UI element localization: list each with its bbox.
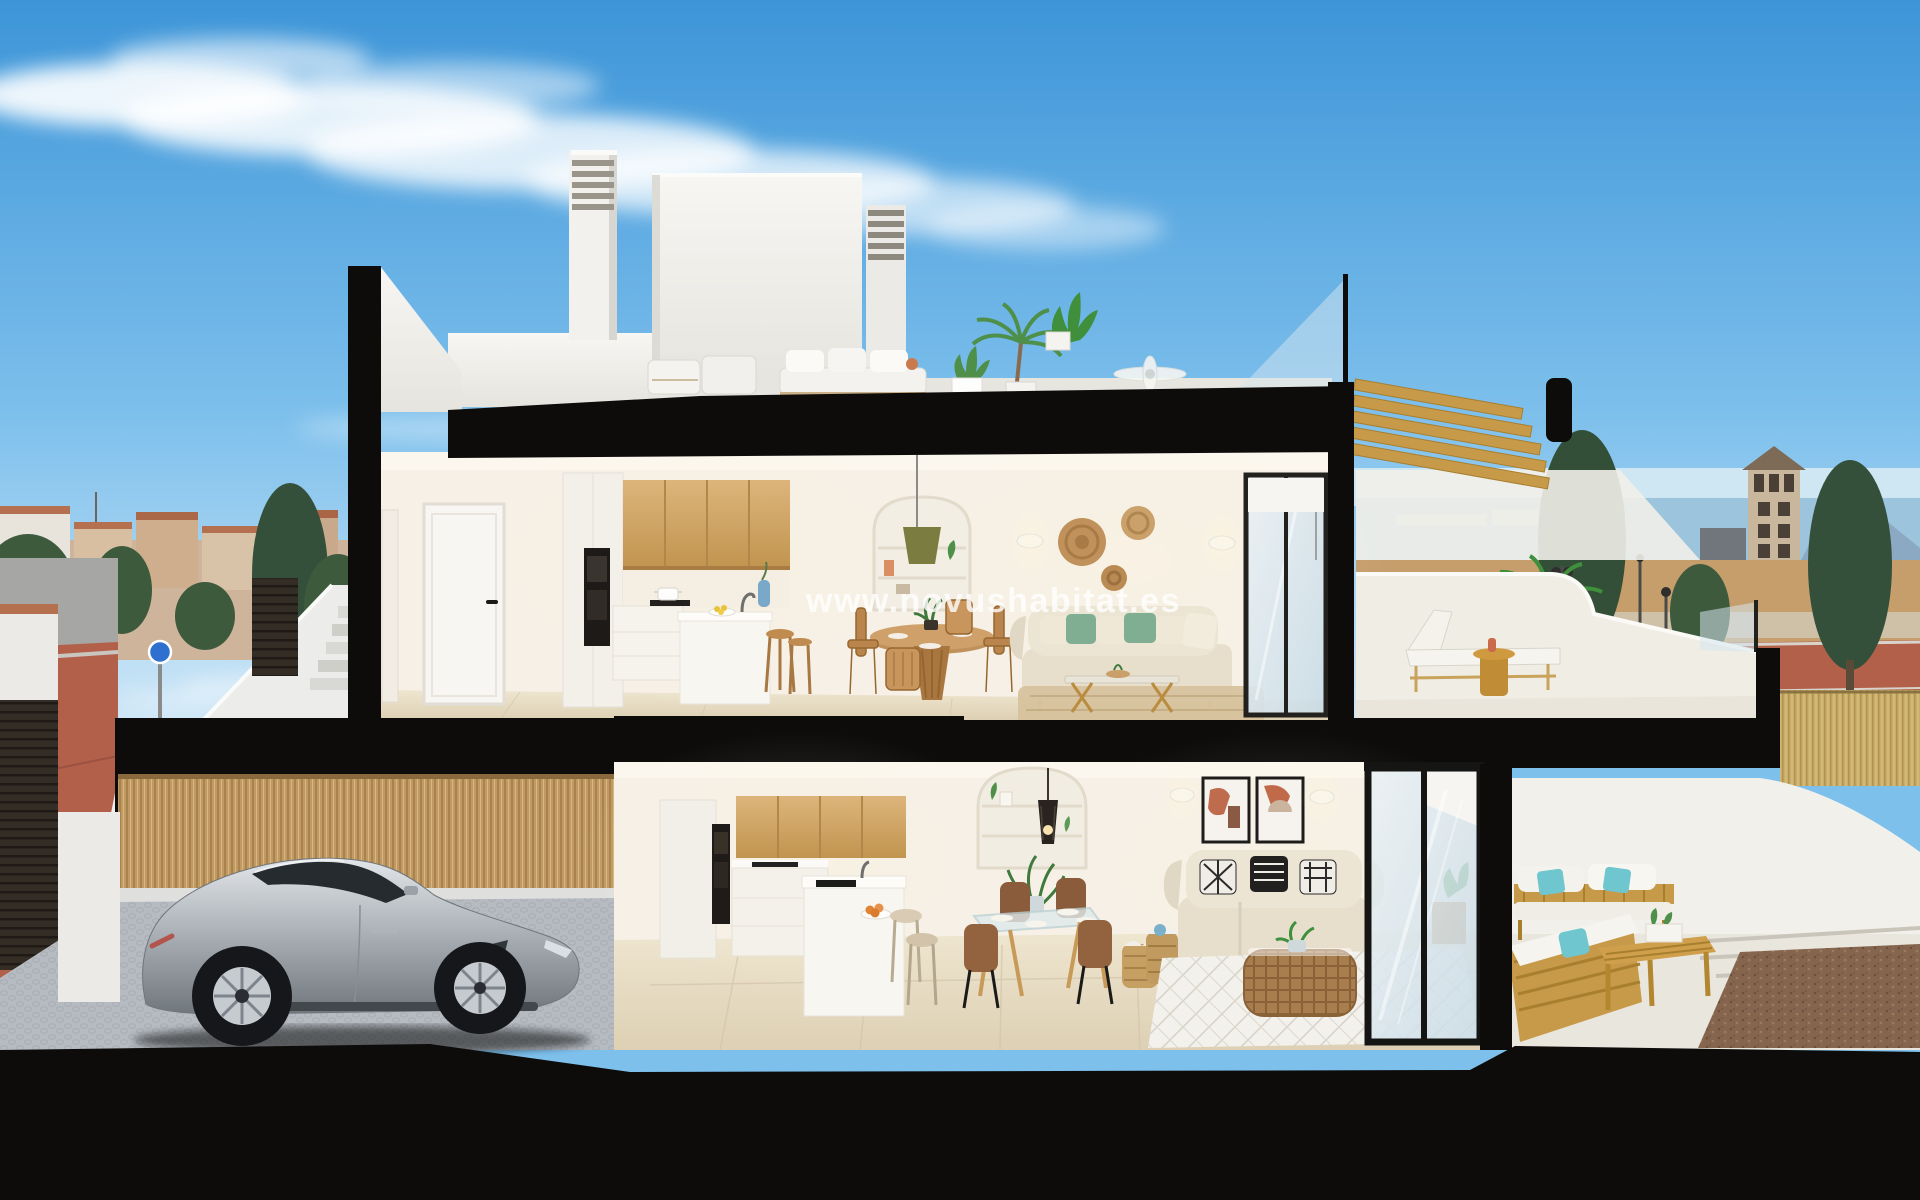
left-wall-cut bbox=[348, 266, 381, 760]
louvered-chimney-left bbox=[569, 150, 617, 340]
render-image: www.novushabitat.es bbox=[0, 0, 1920, 1200]
hall-door bbox=[424, 504, 504, 704]
car-door-handle bbox=[372, 928, 398, 933]
balustrade-post bbox=[1343, 274, 1348, 386]
hob bbox=[650, 600, 690, 606]
roof-lounge-chairs bbox=[648, 356, 756, 394]
roller-blind bbox=[1248, 478, 1324, 512]
kitchen-island-2 bbox=[802, 862, 906, 1016]
watchtower bbox=[1742, 446, 1806, 562]
bw-pillows bbox=[1200, 856, 1336, 894]
mid-slab-left bbox=[115, 718, 660, 776]
island-sink bbox=[816, 880, 856, 887]
cooking-pot bbox=[654, 588, 682, 600]
white-pillar bbox=[58, 812, 120, 1002]
car-mirror bbox=[404, 886, 418, 895]
rear-wheel bbox=[192, 946, 292, 1046]
front-wheel bbox=[434, 942, 526, 1034]
base-cabinets bbox=[613, 606, 683, 680]
carport bbox=[0, 774, 616, 1054]
terracotta-pot bbox=[906, 358, 918, 370]
door-handle bbox=[486, 600, 498, 604]
street-wall bbox=[0, 612, 58, 704]
understair-slat-door bbox=[252, 578, 298, 676]
watermark-text: www.novushabitat.es bbox=[805, 582, 1181, 620]
reed-fence bbox=[1780, 690, 1920, 786]
right-upper-wall-cut bbox=[1328, 382, 1354, 770]
tall-cabinets-2 bbox=[660, 800, 716, 958]
lower-terrace bbox=[1508, 778, 1920, 1050]
roof-parapet-left bbox=[448, 333, 658, 407]
pergola-end-beam bbox=[1546, 378, 1572, 442]
upper-floor-interior bbox=[380, 410, 1390, 728]
lower-right-wall-cut bbox=[1480, 764, 1512, 1050]
scene-canvas: www.novushabitat.es bbox=[0, 0, 1920, 1200]
arched-niche-2 bbox=[978, 768, 1086, 868]
door-track bbox=[1364, 762, 1484, 771]
hob-2 bbox=[752, 862, 798, 867]
slatted-gate bbox=[0, 700, 58, 970]
roof-outdoor-sofa bbox=[780, 348, 926, 396]
terrace-slab-leg bbox=[1756, 648, 1780, 768]
cup bbox=[1488, 638, 1496, 652]
distant-building bbox=[1700, 528, 1746, 562]
hall-door-left bbox=[382, 510, 398, 702]
upper-sliding-door bbox=[1246, 475, 1326, 715]
bottom-cut-band bbox=[0, 1044, 1920, 1200]
ground-sliding-door bbox=[1364, 762, 1484, 1042]
